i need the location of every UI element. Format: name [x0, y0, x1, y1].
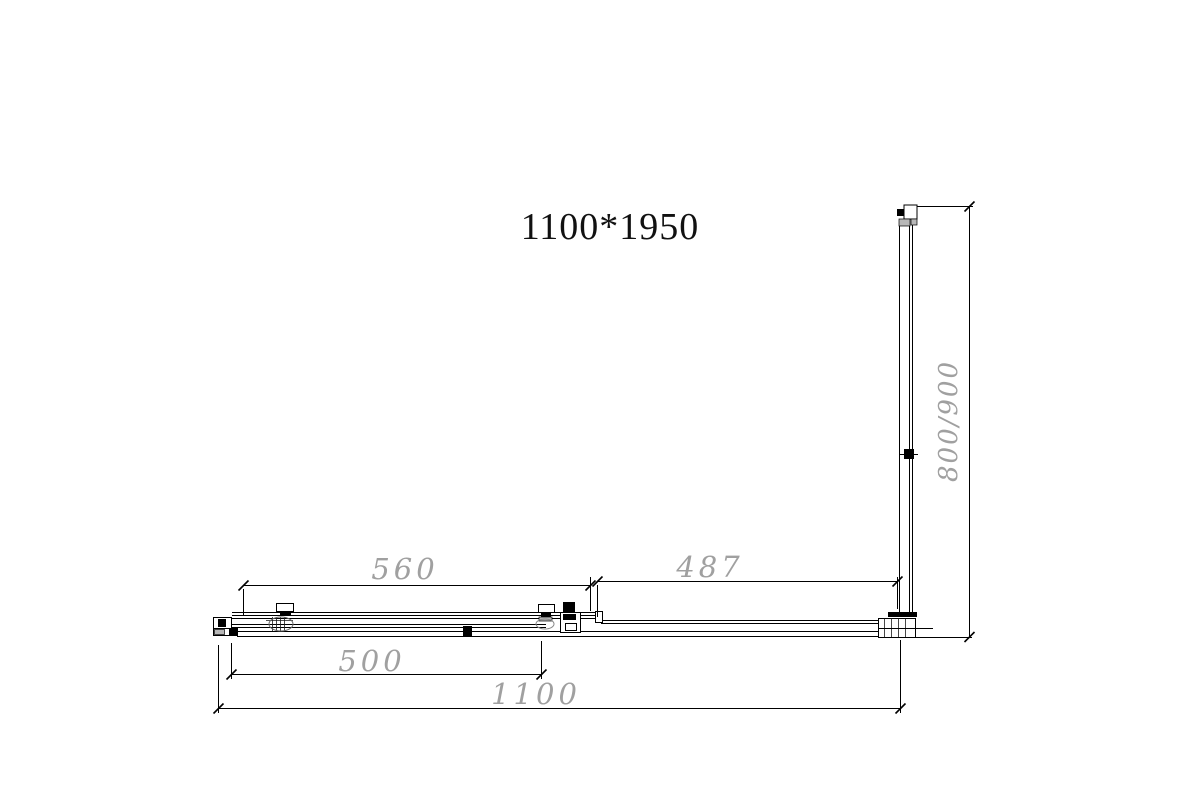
technical-drawing-canvas: 1100*1950 [0, 0, 1195, 786]
sliding-door-assembly [232, 602, 878, 637]
roller-carriage-left [266, 604, 294, 632]
dimension-800-900: 800/900 [917, 202, 975, 643]
left-wall-profile [214, 618, 238, 636]
dimension-1100: 1100 [214, 640, 906, 714]
bracket-top-block [563, 602, 575, 612]
bracket-insert [563, 614, 576, 620]
dimension-label-800-900: 800/900 [934, 360, 964, 482]
roller-carriage-right [536, 605, 555, 630]
mid-panel-clip [899, 449, 918, 459]
dimension-487: 487 [593, 550, 903, 617]
shower-enclosure-plan-drawing: 1100*1950 [0, 0, 1195, 786]
wall-profile-gasket [215, 630, 225, 635]
dimension-label-560: 560 [371, 552, 438, 586]
dimension-500: 500 [227, 641, 547, 680]
roller-mount [541, 612, 551, 617]
door-stopper [463, 626, 472, 636]
profile-clamp [897, 209, 904, 216]
profile-body [904, 205, 917, 219]
dimension-label-500: 500 [338, 644, 405, 678]
side-panel [888, 205, 918, 617]
dimension-label-1100: 1100 [491, 677, 581, 711]
profile-gasket [911, 219, 917, 225]
profile-gasket [899, 219, 910, 226]
drawing-title: 1100*1950 [521, 206, 700, 248]
dimension-label-487: 487 [675, 550, 743, 584]
roller-cap [539, 605, 555, 613]
door-edge-bracket [561, 602, 603, 633]
wall-profile-clamp [218, 619, 226, 627]
roller-cap [277, 604, 294, 612]
corner-profile [878, 619, 972, 638]
wall-profile-insert [229, 629, 237, 635]
bracket-foot [566, 624, 577, 631]
roller-mount [280, 611, 291, 616]
bottom-seal-bar [888, 612, 917, 617]
bracket-end-cap [596, 612, 603, 623]
top-wall-profile [897, 205, 917, 226]
